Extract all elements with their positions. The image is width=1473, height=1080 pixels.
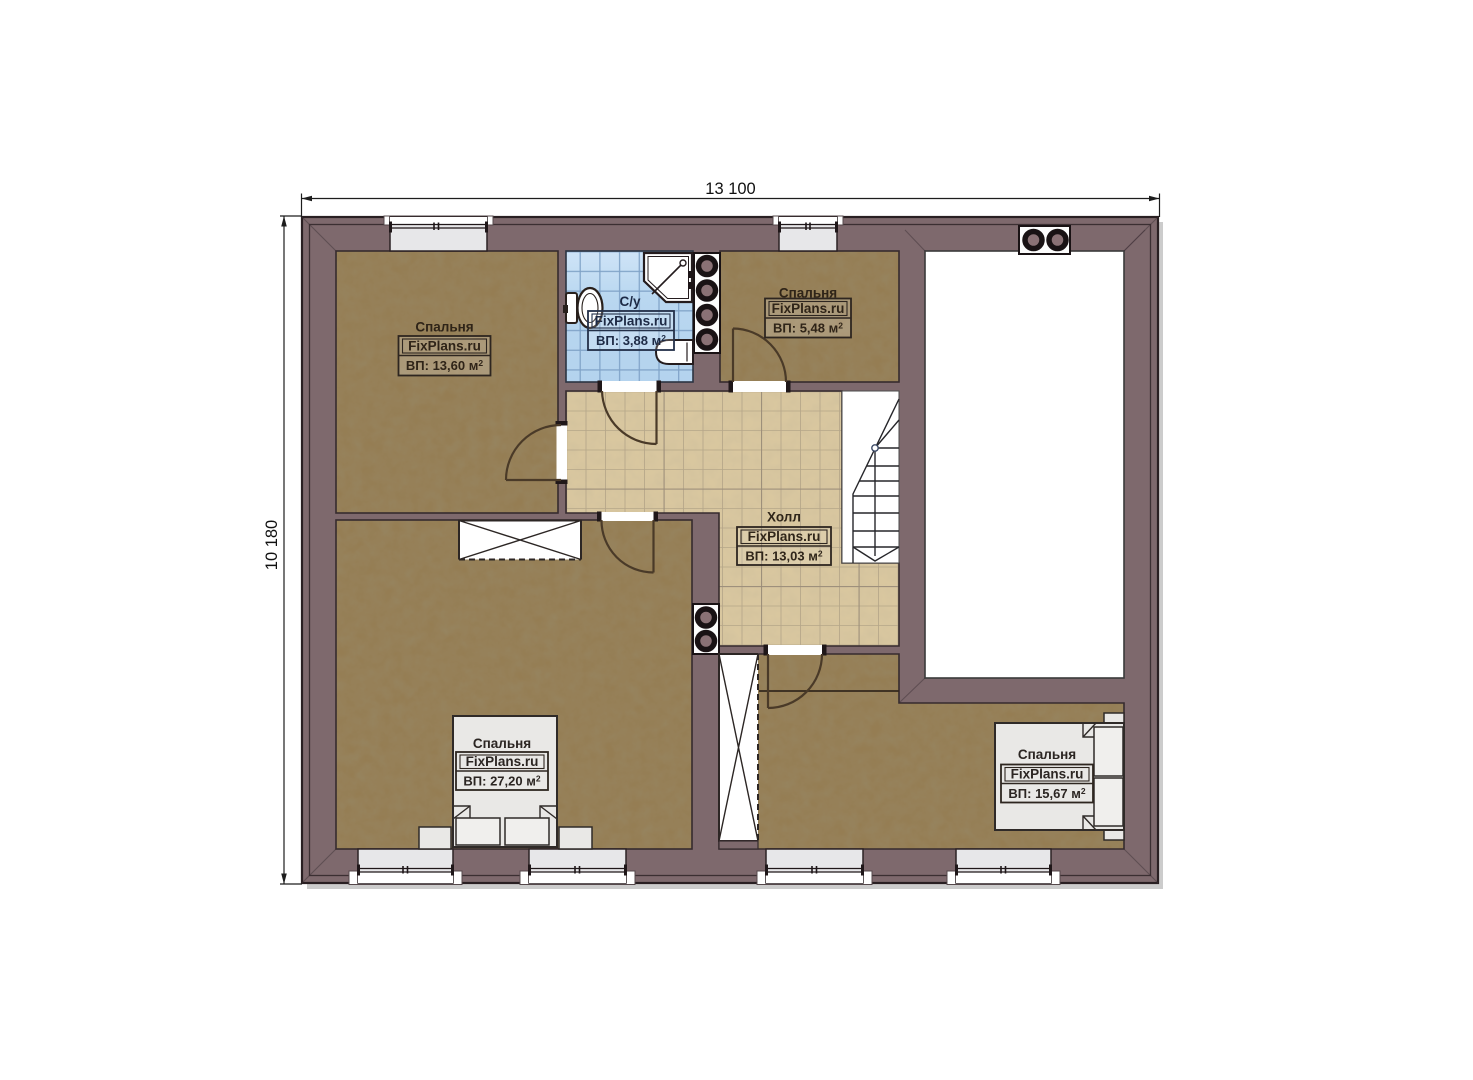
svg-text:ВП: 13,03 м2: ВП: 13,03 м2 xyxy=(745,549,822,564)
svg-text:С/у: С/у xyxy=(619,294,641,309)
svg-text:FixPlans.ru: FixPlans.ru xyxy=(466,754,539,769)
svg-text:Спальня: Спальня xyxy=(1018,747,1076,762)
svg-text:ВП: 13,60 м2: ВП: 13,60 м2 xyxy=(406,358,483,373)
svg-text:13 100: 13 100 xyxy=(705,180,755,198)
svg-text:Спальня: Спальня xyxy=(415,320,473,335)
svg-text:ВП: 5,48 м2: ВП: 5,48 м2 xyxy=(773,321,843,336)
svg-text:ВП: 15,67 м2: ВП: 15,67 м2 xyxy=(1008,786,1085,801)
svg-text:FixPlans.ru: FixPlans.ru xyxy=(1011,767,1084,782)
svg-text:FixPlans.ru: FixPlans.ru xyxy=(408,339,481,354)
svg-text:10 180: 10 180 xyxy=(263,520,281,570)
svg-text:FixPlans.ru: FixPlans.ru xyxy=(772,301,845,316)
svg-text:ВП: 27,20 м2: ВП: 27,20 м2 xyxy=(463,774,540,789)
svg-text:FixPlans.ru: FixPlans.ru xyxy=(748,529,821,544)
svg-text:Холл: Холл xyxy=(767,510,801,525)
svg-text:ВП: 3,88 м2: ВП: 3,88 м2 xyxy=(596,333,666,348)
svg-text:FixPlans.ru: FixPlans.ru xyxy=(595,314,668,329)
svg-text:Спальня: Спальня xyxy=(473,736,531,751)
